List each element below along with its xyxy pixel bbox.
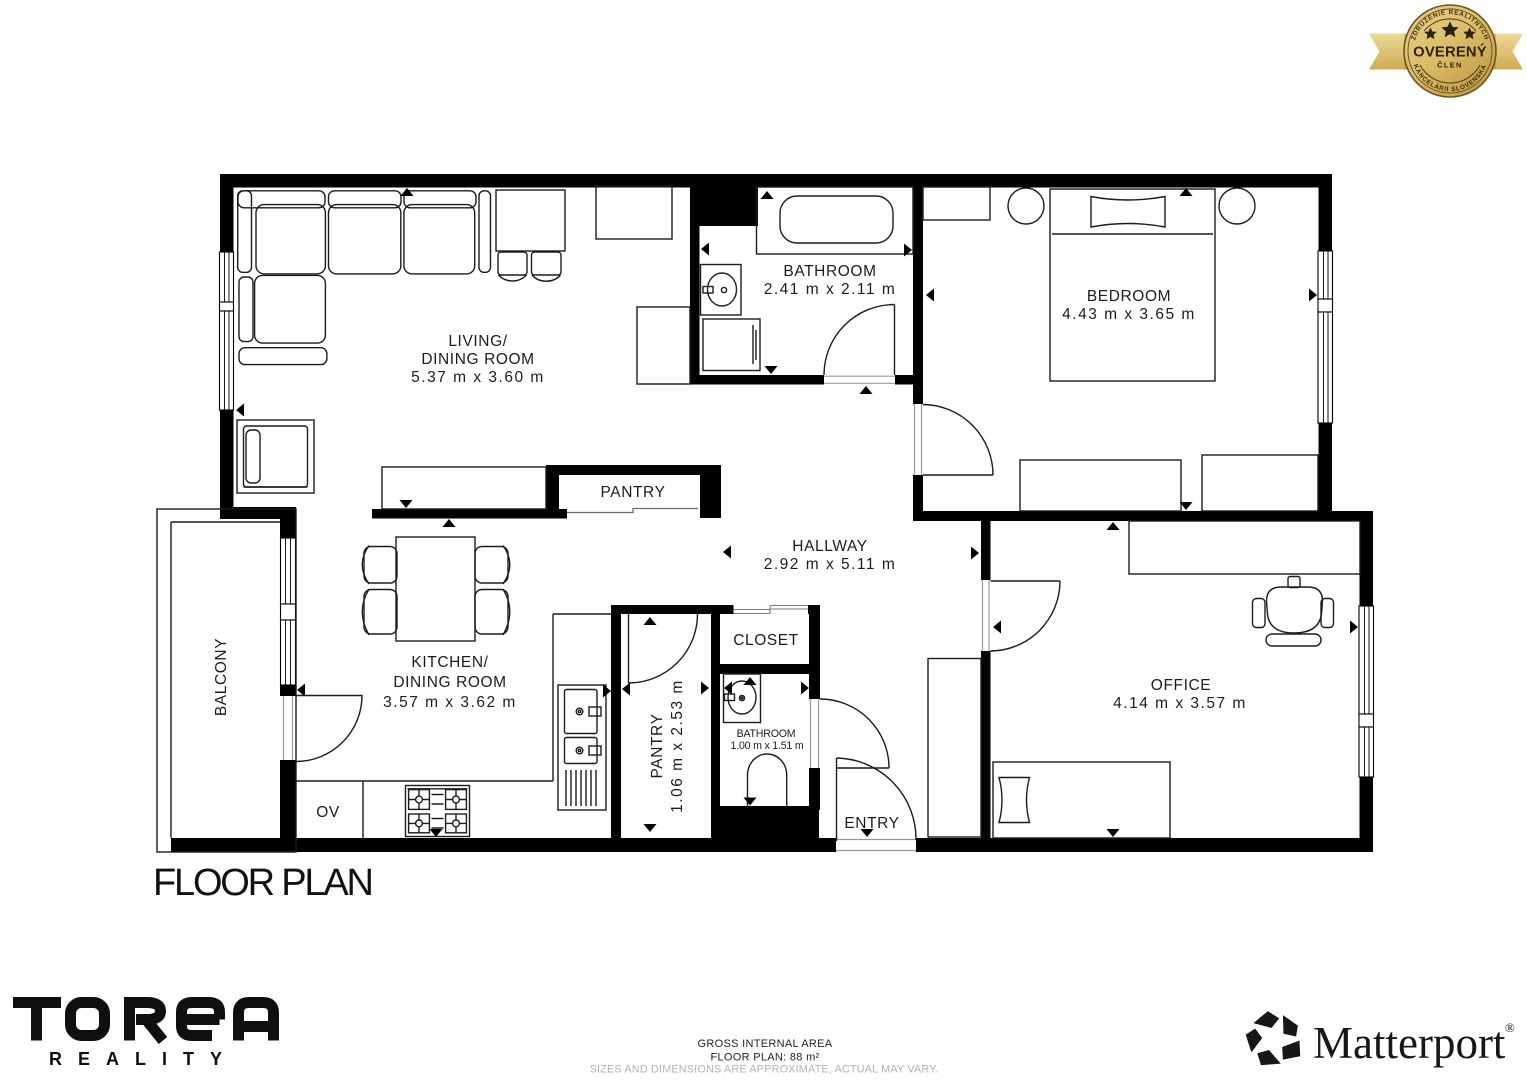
svg-text:FLOOR PLAN: FLOOR PLAN: [153, 862, 372, 904]
svg-text:BALCONY: BALCONY: [213, 638, 230, 716]
svg-text:®: ®: [1505, 1020, 1515, 1035]
svg-text:PANTRY: PANTRY: [600, 484, 665, 501]
svg-text:CLOSET: CLOSET: [733, 632, 799, 649]
svg-text:OV: OV: [316, 804, 340, 821]
svg-text:2.92 m x 5.11 m: 2.92 m x 5.11 m: [764, 556, 896, 573]
svg-text:3.57 m x 3.62 m: 3.57 m x 3.62 m: [383, 694, 517, 711]
svg-text:REALITY: REALITY: [49, 1049, 238, 1069]
svg-text:SIZES AND DIMENSIONS ARE APPRO: SIZES AND DIMENSIONS ARE APPROXIMATE, AC…: [590, 1064, 939, 1076]
svg-text:GROSS INTERNAL AREA: GROSS INTERNAL AREA: [698, 1038, 833, 1050]
svg-text:5.37 m x 3.60 m: 5.37 m x 3.60 m: [411, 369, 545, 386]
svg-text:OFFICE: OFFICE: [1151, 677, 1211, 694]
svg-text:1.00 m x 1.51 m: 1.00 m x 1.51 m: [731, 740, 804, 752]
svg-text:FLOOR PLAN: 88 m²: FLOOR PLAN: 88 m²: [710, 1052, 819, 1064]
svg-text:HALLWAY: HALLWAY: [792, 538, 867, 555]
svg-text:PANTRY: PANTRY: [649, 713, 666, 778]
svg-text:4.43 m x 3.65 m: 4.43 m x 3.65 m: [1062, 306, 1196, 323]
svg-text:2.41 m x 2.11 m: 2.41 m x 2.11 m: [764, 281, 896, 298]
svg-text:Matterport: Matterport: [1313, 1018, 1506, 1068]
svg-text:BATHROOM: BATHROOM: [737, 728, 796, 740]
svg-text:4.14 m x 3.57 m: 4.14 m x 3.57 m: [1113, 695, 1247, 712]
svg-text:OVERENÝ: OVERENÝ: [1413, 43, 1487, 61]
svg-text:ČLEN: ČLEN: [1437, 61, 1462, 70]
svg-text:LIVING/: LIVING/: [448, 333, 507, 350]
svg-text:DINING ROOM: DINING ROOM: [421, 351, 534, 368]
svg-text:BEDROOM: BEDROOM: [1087, 288, 1171, 305]
svg-text:KITCHEN/: KITCHEN/: [411, 654, 488, 671]
svg-text:1.06 m x 2.53 m: 1.06 m x 2.53 m: [669, 679, 686, 813]
svg-text:BATHROOM: BATHROOM: [783, 263, 876, 280]
svg-text:DINING ROOM: DINING ROOM: [393, 674, 506, 691]
